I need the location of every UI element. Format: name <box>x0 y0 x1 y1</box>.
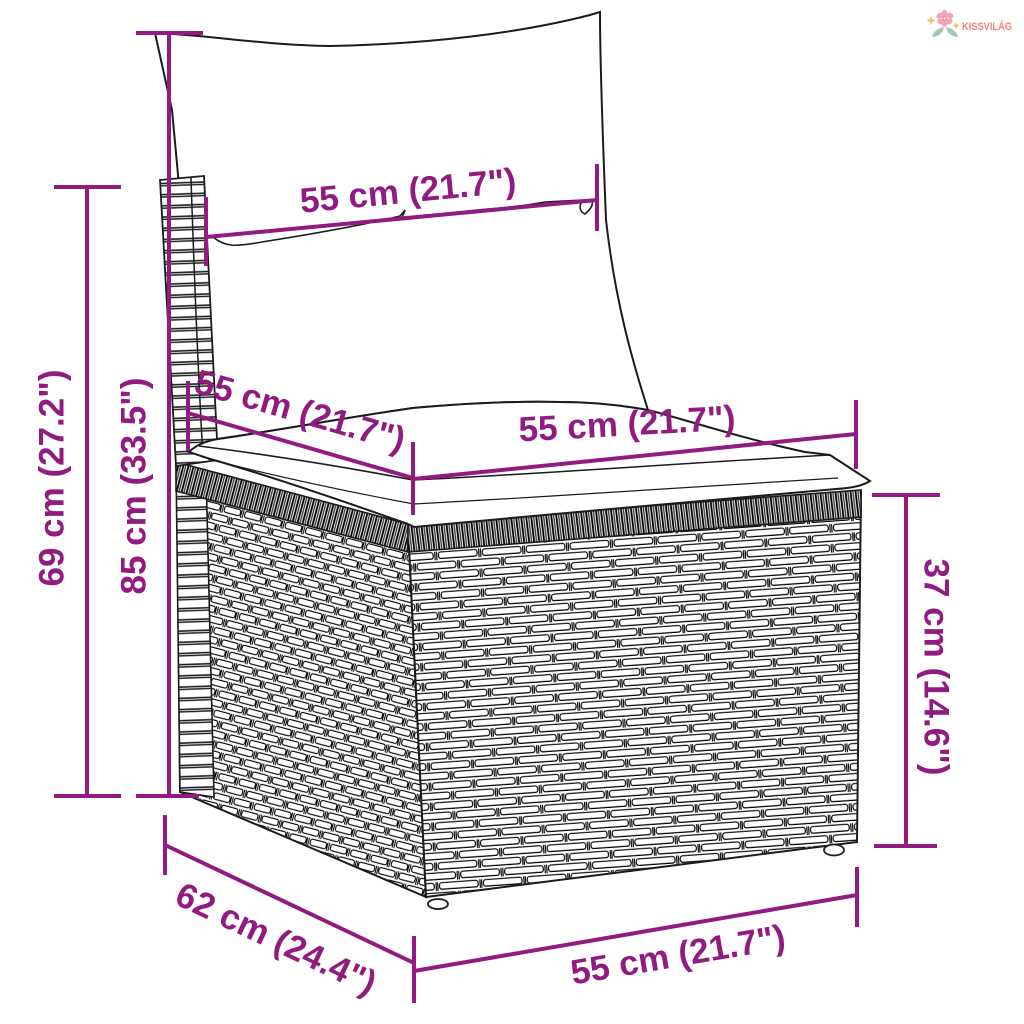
svg-text:85 cm (33.5"): 85 cm (33.5") <box>115 378 154 595</box>
svg-text:37 cm (14.6"): 37 cm (14.6") <box>917 559 956 776</box>
svg-text:KISSVILÁG: KISSVILÁG <box>962 20 1012 33</box>
svg-text:69 cm (27.2"): 69 cm (27.2") <box>33 370 72 587</box>
